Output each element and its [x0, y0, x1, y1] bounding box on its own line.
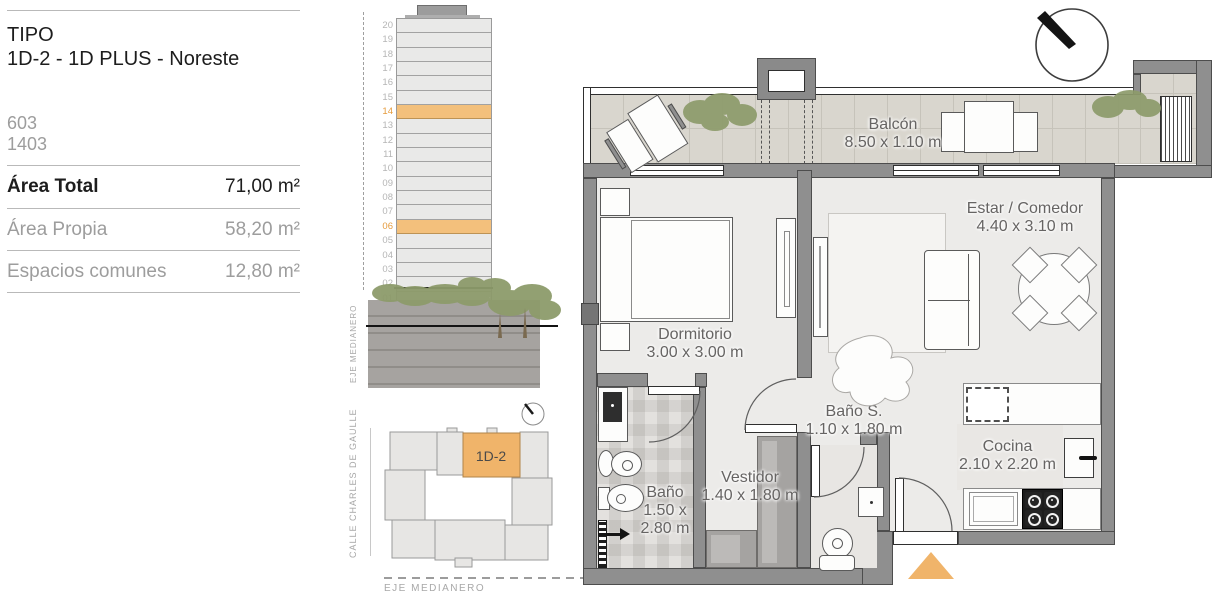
bed-duvet — [631, 220, 730, 319]
exterior-wall — [958, 531, 1115, 545]
balcony-parapet-left — [583, 87, 591, 165]
interior-wall — [695, 373, 707, 387]
tower-floor-number: 17 — [374, 63, 393, 74]
walkin-closet-door — [745, 424, 797, 433]
tv-console — [813, 237, 828, 337]
compass-needle — [1037, 11, 1076, 49]
nightstand — [600, 188, 630, 216]
site-unit-label: 1D-2 — [476, 448, 507, 464]
tower-floor-number: 08 — [374, 192, 393, 203]
tower-floor-number: 12 — [374, 135, 393, 146]
tower-floor-16: 16 — [397, 76, 491, 90]
ac-louver-unit — [1160, 96, 1192, 162]
party-wall-axis-line — [363, 12, 364, 290]
tower-floor-number: 20 — [374, 20, 393, 31]
sofa — [924, 250, 980, 350]
divider — [7, 250, 300, 251]
balcony-label: Balcón8.50 x 1.10 m — [820, 116, 966, 152]
divider — [7, 10, 300, 11]
espacios-comunes-label: Espacios comunes — [7, 261, 166, 283]
tower-floor-18: 18 — [397, 48, 491, 62]
service-sink — [858, 487, 884, 517]
tipo-label: TIPO — [7, 24, 54, 47]
appliance-space-dashed — [966, 387, 1009, 422]
tower-floor-20: 20 — [397, 19, 491, 33]
living-window — [983, 165, 1060, 176]
tower-floor-11: 11 — [397, 148, 491, 162]
shaft-projection-line — [769, 100, 770, 164]
site-axis-label: EJE MEDIANERO — [384, 583, 485, 594]
floorplan-page: TIPO 1D-2 - 1D PLUS - Noreste 603 1403 Á… — [0, 0, 1220, 600]
walkin-closet-label: Vestidor1.40 x 1.80 m — [690, 469, 810, 505]
bathroom-door — [648, 386, 700, 395]
tower-floor-06: 06 — [397, 220, 491, 234]
area-total-value: 71,00 m² — [160, 176, 300, 198]
tower-floor-number: 05 — [374, 235, 393, 246]
shower-fixture — [598, 520, 607, 568]
area-propia-label: Área Propia — [7, 219, 107, 241]
tower-floor-number: 10 — [374, 163, 393, 174]
divider — [7, 165, 300, 166]
area-total-label: Área Total — [7, 176, 99, 198]
living-window — [893, 165, 979, 176]
tower-floor-number: 18 — [374, 49, 393, 60]
entrance-door — [895, 478, 904, 532]
entrance-marker — [908, 552, 954, 579]
nightstand — [600, 323, 630, 351]
tower-floor-number: 13 — [374, 120, 393, 131]
tower-floor-19: 19 — [397, 33, 491, 47]
tower-floor-12: 12 — [397, 134, 491, 148]
service-bathroom-door — [811, 445, 820, 497]
exterior-wall — [583, 178, 597, 585]
elevation-greenery — [360, 258, 580, 348]
tower-floor-17: 17 — [397, 62, 491, 76]
tower-floor-10: 10 — [397, 162, 491, 176]
tower-floor-08: 08 — [397, 191, 491, 205]
tower-floor-number: 09 — [374, 178, 393, 189]
interior-wall — [797, 170, 812, 378]
tower-floor-number: 19 — [374, 34, 393, 45]
entrance-threshold — [893, 531, 958, 545]
bedroom-wardrobe — [776, 218, 796, 318]
tower-floor-number: 11 — [374, 149, 393, 160]
area-propia-value: 58,20 m² — [160, 219, 300, 241]
structural-column — [581, 303, 599, 325]
bathroom-vanity — [598, 387, 628, 442]
tower-floor-number: 16 — [374, 77, 393, 88]
divider — [7, 292, 300, 293]
balcony-table — [964, 101, 1014, 153]
shaft-projection-line — [812, 100, 813, 164]
service-bathroom-label: Baño S.1.10 x 1.80 m — [795, 403, 913, 439]
bedroom-label: Dormitorio3.00 x 3.00 m — [630, 326, 760, 362]
duct-shaft-opening — [768, 70, 805, 92]
service-toilet-base — [819, 555, 855, 571]
tower-floor-number: 14 — [374, 106, 393, 117]
unit-type-title: 1D-2 - 1D PLUS - Noreste — [7, 48, 239, 71]
tower-floor-15: 15 — [397, 91, 491, 105]
tower-floor-14: 14 — [397, 105, 491, 119]
exterior-wall — [1104, 165, 1212, 178]
tower-floor-07: 07 — [397, 205, 491, 219]
shaft-projection-line — [761, 100, 762, 164]
exterior-wall — [1133, 74, 1141, 95]
living-dining-label: Estar / Comedor4.40 x 3.10 m — [945, 200, 1105, 236]
tower-floor-05: 05 — [397, 234, 491, 248]
espacios-comunes-value: 12,80 m² — [200, 261, 300, 283]
elevation-axis-label: EJE MEDIANERO — [349, 293, 358, 383]
tower-floor-number: 06 — [374, 221, 393, 232]
kitchen-label: Cocina2.10 x 2.20 m — [945, 438, 1070, 474]
interior-wall — [597, 373, 648, 387]
exterior-wall — [1196, 60, 1212, 178]
site-plan-drawing: 1D-2 — [340, 393, 620, 600]
stove — [1022, 489, 1063, 529]
unit-number-1: 603 — [7, 113, 37, 134]
tower-floor-number: 15 — [374, 92, 393, 103]
tower-floor-number: 07 — [374, 206, 393, 217]
toilet — [611, 451, 642, 477]
tower-floor-09: 09 — [397, 177, 491, 191]
unit-number-2: 1403 — [7, 134, 47, 155]
kitchen-sink-unit — [969, 492, 1018, 526]
closet-wardrobe — [706, 530, 757, 568]
tower-floor-13: 13 — [397, 119, 491, 133]
shaft-projection-line — [804, 100, 805, 164]
divider — [7, 208, 300, 209]
north-compass-icon — [1036, 9, 1108, 81]
